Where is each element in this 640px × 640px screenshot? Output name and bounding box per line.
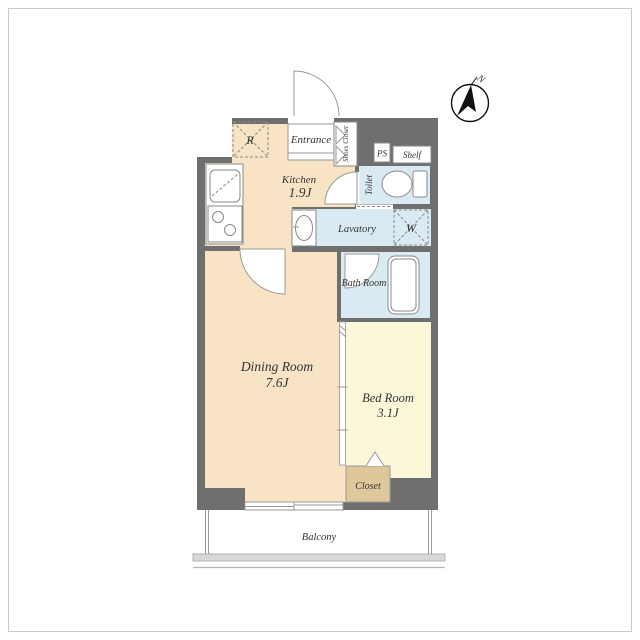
sliding-partition <box>338 322 348 465</box>
dining-label: Dining Room <box>240 359 314 374</box>
ps-label: PS <box>376 149 387 159</box>
entrance-door-swing <box>294 71 339 116</box>
balcony-window <box>245 502 343 510</box>
shoes-closet-label: Shoes Closet <box>342 125 350 162</box>
washer-label: W <box>406 221 417 235</box>
toilet-icon <box>382 171 427 197</box>
compass-icon <box>452 77 489 122</box>
kitchen-size-label: 1.9J <box>289 185 313 200</box>
closet-label: Closet <box>355 481 381 492</box>
compass-north-label: N <box>474 72 488 86</box>
fridge-label: R <box>245 133 254 147</box>
bathtub-icon <box>388 256 419 314</box>
bathroom-label: Bath Room <box>342 278 387 289</box>
lavatory-label: Lavatory <box>337 224 376 235</box>
shelf-label: Shelf <box>403 150 422 160</box>
interior-wall <box>205 246 240 251</box>
entrance-label: Entrance <box>290 134 331 146</box>
dining-size-label: 7.6J <box>266 375 290 390</box>
balcony-label: Balcony <box>302 532 337 543</box>
entrance-step <box>288 153 334 160</box>
bedroom-size-label: 3.1J <box>376 406 400 420</box>
toilet-label: Toilet <box>364 174 374 195</box>
sink-icon <box>292 210 316 246</box>
bedroom-label: Bed Room <box>362 391 414 405</box>
floor-plan-drawing: N Entrance Shoes Closet PS Shelf Toilet … <box>0 0 640 640</box>
kitchen-counter-icon <box>206 164 243 244</box>
floor-plan-page: N Entrance Shoes Closet PS Shelf Toilet … <box>0 0 640 640</box>
